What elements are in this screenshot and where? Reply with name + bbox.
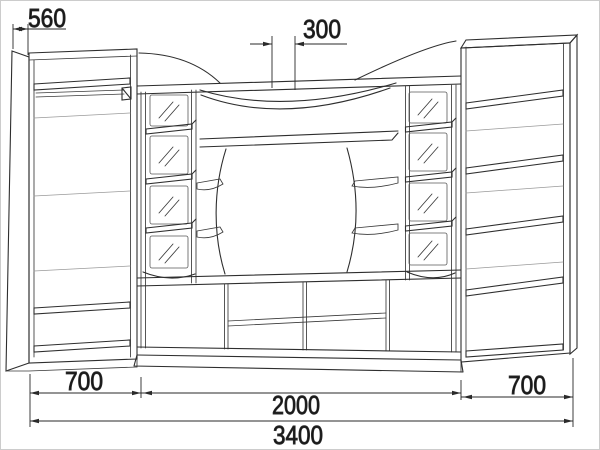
dim-label-700-left: 700 — [65, 366, 103, 396]
drawing-canvas: 560 300 700 2000 700 — [0, 0, 600, 450]
dim-label-2000: 2000 — [272, 390, 320, 420]
drawing-sheet: 560 300 700 2000 700 — [0, 0, 600, 450]
dim-label-700-right: 700 — [508, 370, 546, 400]
dim-label-3400: 3400 — [273, 420, 323, 450]
dim-label-560: 560 — [28, 3, 66, 33]
dim-label-300: 300 — [303, 14, 341, 44]
